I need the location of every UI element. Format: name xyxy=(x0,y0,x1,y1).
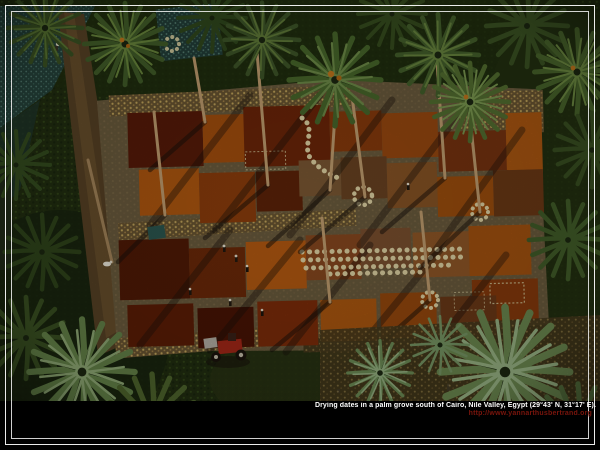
photo-caption: Drying dates in a palm grove south of Ca… xyxy=(38,402,598,418)
photo-postcard: Drying dates in a palm grove south of Ca… xyxy=(0,0,600,450)
photo-illustration xyxy=(0,0,600,450)
caption-url: http://www.yannarthusbertrand.org xyxy=(38,410,598,418)
caption-title: Drying dates in a palm grove south of Ca… xyxy=(38,402,598,410)
vignette-overlay xyxy=(0,0,600,450)
